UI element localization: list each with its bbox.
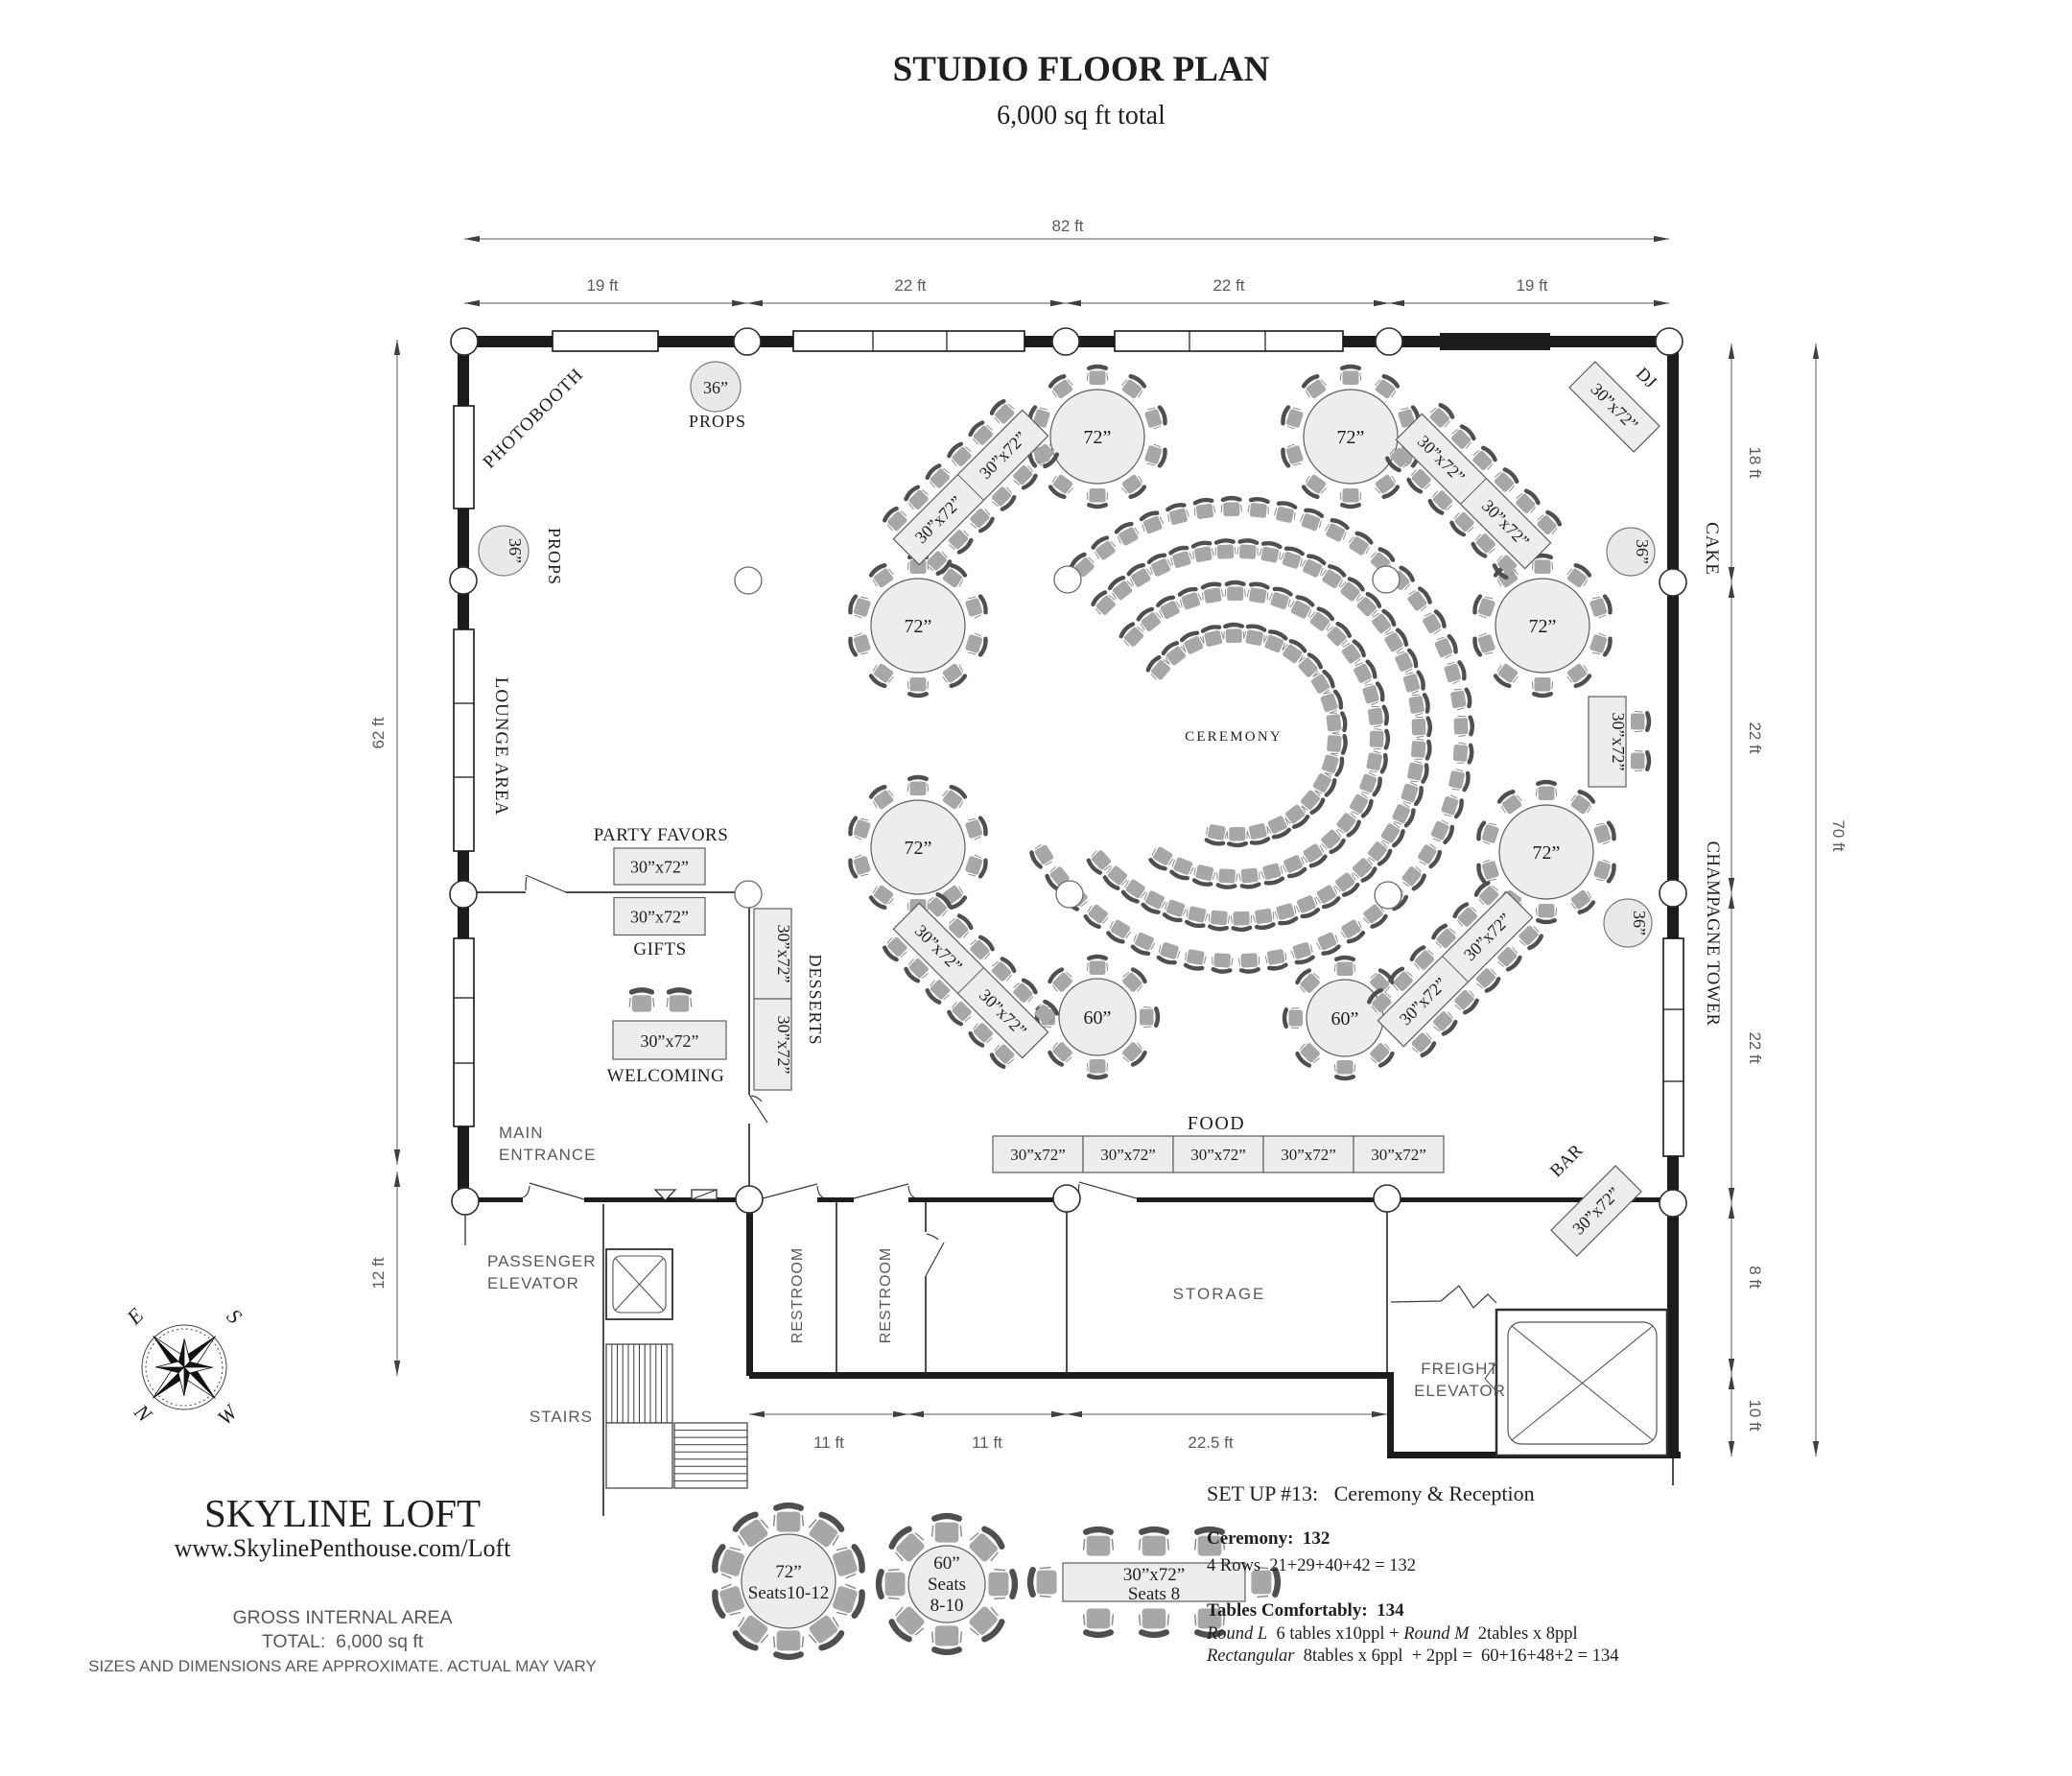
- svg-text:WELCOMING: WELCOMING: [607, 1066, 725, 1086]
- svg-text:36”: 36”: [506, 538, 525, 563]
- svg-text:PROPS: PROPS: [545, 528, 564, 585]
- svg-text:30”x72”: 30”x72”: [1123, 1565, 1185, 1585]
- svg-text:22.5 ft: 22.5 ft: [1188, 1433, 1234, 1452]
- svg-text:PROPS: PROPS: [689, 412, 746, 431]
- svg-text:8 ft: 8 ft: [1746, 1266, 1764, 1289]
- svg-text:22 ft: 22 ft: [1746, 1031, 1764, 1063]
- svg-text:30”x72”: 30”x72”: [774, 925, 793, 983]
- svg-text:30”x72”: 30”x72”: [641, 1031, 699, 1051]
- svg-text:82 ft: 82 ft: [1051, 217, 1083, 235]
- svg-text:30”x72”: 30”x72”: [1190, 1146, 1246, 1164]
- svg-text:ENTRANCE: ENTRANCE: [499, 1146, 597, 1164]
- svg-text:E: E: [121, 1303, 148, 1330]
- svg-text:N: N: [129, 1399, 158, 1428]
- svg-text:Ceremony: 132: Ceremony: 132: [1207, 1528, 1330, 1549]
- svg-text:19 ft: 19 ft: [586, 276, 618, 295]
- svg-text:BAR: BAR: [1546, 1141, 1588, 1182]
- svg-text:22 ft: 22 ft: [1746, 722, 1764, 753]
- svg-text:72”: 72”: [905, 838, 932, 859]
- svg-text:12 ft: 12 ft: [369, 1257, 388, 1289]
- svg-text:30”x72”: 30”x72”: [1010, 1146, 1066, 1164]
- svg-text:72”: 72”: [1529, 616, 1557, 637]
- svg-text:60”: 60”: [933, 1553, 959, 1574]
- svg-text:RESTROOM: RESTROOM: [789, 1247, 806, 1343]
- svg-text:Seats10-12: Seats10-12: [748, 1583, 829, 1603]
- svg-text:STUDIO FLOOR PLAN: STUDIO FLOOR PLAN: [893, 50, 1270, 89]
- svg-text:60”: 60”: [1084, 1007, 1112, 1029]
- svg-text:72”: 72”: [1084, 427, 1112, 448]
- svg-text:72”: 72”: [775, 1562, 801, 1582]
- svg-text:Round L 6 tables x10ppl + Rou: Round L 6 tables x10ppl + Round M 2table…: [1206, 1624, 1578, 1644]
- svg-text:60”: 60”: [1331, 1008, 1359, 1030]
- svg-text:SET UP #13: Ceremony & Recep: SET UP #13: Ceremony & Reception: [1207, 1481, 1535, 1505]
- svg-text:30”x72”: 30”x72”: [774, 1016, 793, 1075]
- svg-text:CHAMPAGNE TOWER: CHAMPAGNE TOWER: [1703, 841, 1722, 1027]
- svg-text:62 ft: 62 ft: [369, 717, 388, 748]
- svg-text:72”: 72”: [1533, 842, 1561, 864]
- svg-text:ELEVATOR: ELEVATOR: [487, 1274, 579, 1292]
- svg-text:11 ft: 11 ft: [972, 1433, 1002, 1452]
- svg-text:Tables Comfortably: 134: Tables Comfortably: 134: [1207, 1600, 1404, 1621]
- svg-text:GROSS INTERNAL AREA: GROSS INTERNAL AREA: [232, 1607, 452, 1628]
- svg-text:22 ft: 22 ft: [1213, 276, 1244, 295]
- svg-text:DJ: DJ: [1632, 364, 1660, 392]
- svg-text:8-10: 8-10: [930, 1596, 964, 1616]
- svg-text:10 ft: 10 ft: [1746, 1399, 1764, 1431]
- svg-text:30”x72”: 30”x72”: [1371, 1146, 1426, 1164]
- svg-text:30”x72”: 30”x72”: [630, 907, 689, 926]
- svg-text:SKYLINE LOFT: SKYLINE LOFT: [204, 1491, 481, 1535]
- svg-text:PHOTOBOOTH: PHOTOBOOTH: [480, 365, 588, 473]
- svg-text:STAIRS: STAIRS: [530, 1408, 593, 1426]
- svg-text:S: S: [223, 1304, 247, 1328]
- svg-text:11 ft: 11 ft: [813, 1433, 844, 1452]
- svg-text:CAKE: CAKE: [1702, 522, 1722, 576]
- svg-text:36”: 36”: [1630, 911, 1649, 935]
- svg-text:Seats: Seats: [928, 1575, 966, 1595]
- svg-text:SIZES AND DIMENSIONS ARE APPRO: SIZES AND DIMENSIONS ARE APPROXIMATE. AC…: [88, 1657, 597, 1675]
- svg-text:30”x72”: 30”x72”: [1281, 1146, 1336, 1164]
- svg-text:Rectangular 8tables x 6ppl +: Rectangular 8tables x 6ppl + 2ppl = 60+1…: [1206, 1646, 1619, 1666]
- svg-text:GIFTS: GIFTS: [633, 939, 686, 959]
- svg-text:RESTROOM: RESTROOM: [878, 1247, 894, 1343]
- svg-text:PARTY FAVORS: PARTY FAVORS: [594, 825, 729, 845]
- svg-text:18 ft: 18 ft: [1746, 446, 1764, 478]
- svg-text:LOUNGE AREA: LOUNGE AREA: [491, 677, 511, 817]
- svg-text:CEREMONY: CEREMONY: [1185, 729, 1283, 745]
- svg-text:30”x72”: 30”x72”: [1609, 713, 1628, 771]
- svg-text:PASSENGER: PASSENGER: [487, 1252, 597, 1270]
- svg-text:FOOD: FOOD: [1188, 1113, 1245, 1134]
- svg-text:30”x72”: 30”x72”: [1100, 1146, 1156, 1164]
- svg-text:36”: 36”: [1633, 539, 1652, 564]
- svg-text:DESSERTS: DESSERTS: [806, 955, 825, 1046]
- svg-text:19 ft: 19 ft: [1516, 276, 1547, 295]
- svg-text:STORAGE: STORAGE: [1173, 1285, 1266, 1303]
- svg-text:www.SkylinePenthouse.com/Loft: www.SkylinePenthouse.com/Loft: [175, 1534, 511, 1562]
- svg-text:Seats 8: Seats 8: [1128, 1584, 1180, 1604]
- svg-text:ELEVATOR: ELEVATOR: [1414, 1382, 1506, 1400]
- svg-text:4 Rows 21+29+40+42 = 132: 4 Rows 21+29+40+42 = 132: [1207, 1556, 1416, 1575]
- svg-text:MAIN: MAIN: [499, 1124, 544, 1142]
- svg-text:72”: 72”: [905, 616, 932, 637]
- svg-text:FREIGHT: FREIGHT: [1421, 1360, 1499, 1378]
- svg-text:36”: 36”: [703, 378, 728, 397]
- svg-text:30”x72”: 30”x72”: [630, 857, 689, 876]
- svg-text:70 ft: 70 ft: [1829, 819, 1848, 851]
- svg-text:6,000 sq ft total: 6,000 sq ft total: [997, 101, 1165, 130]
- svg-text:TOTAL: 6,000 sq ft: TOTAL: 6,000 sq ft: [262, 1631, 424, 1652]
- svg-text:72”: 72”: [1337, 427, 1365, 448]
- svg-text:W: W: [212, 1399, 243, 1430]
- svg-text:22 ft: 22 ft: [894, 276, 926, 295]
